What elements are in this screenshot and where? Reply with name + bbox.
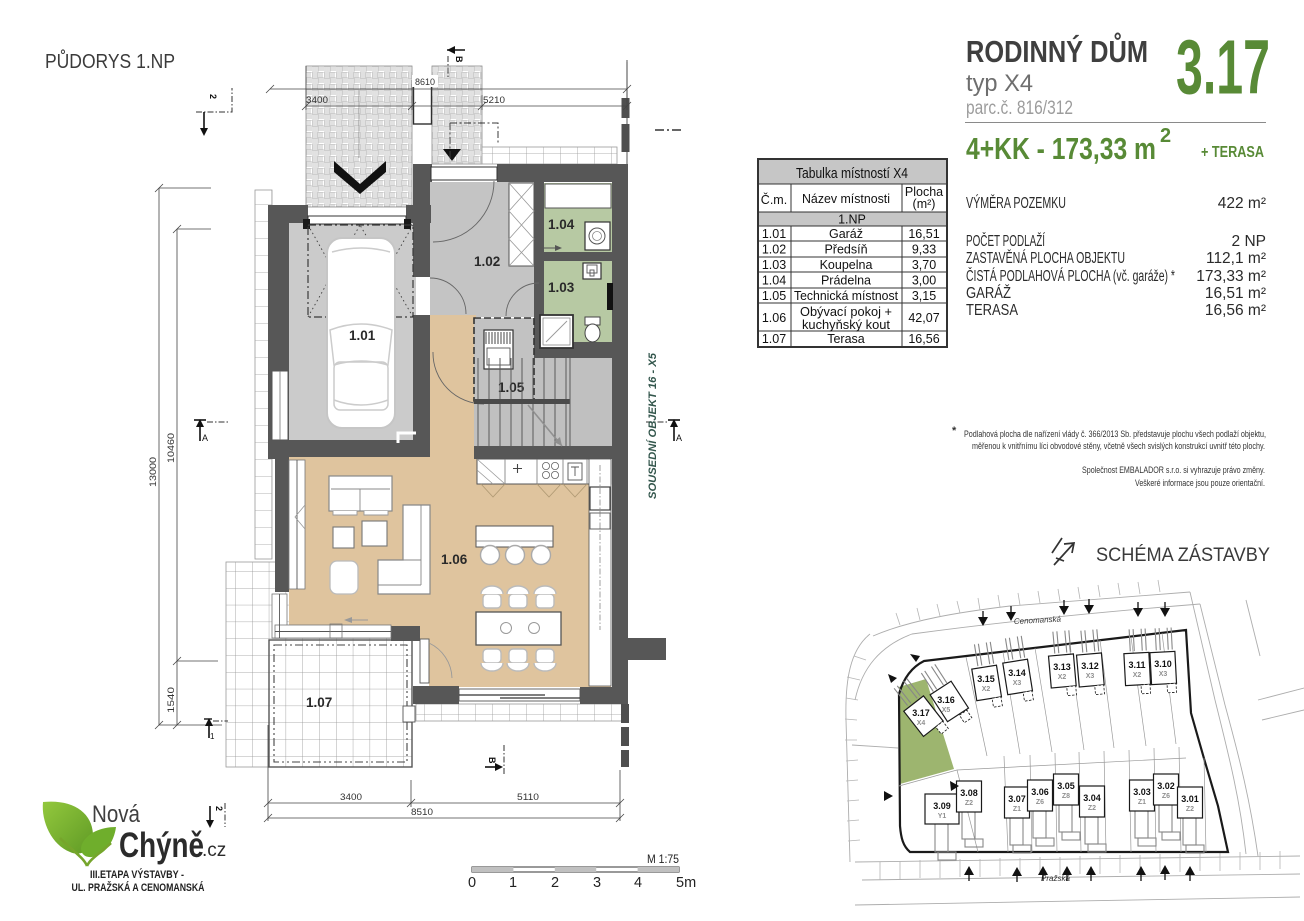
svg-text:16,56 m²: 16,56 m² <box>1205 302 1266 319</box>
svg-text:16,51 m²: 16,51 m² <box>1205 285 1266 302</box>
svg-text:3: 3 <box>593 875 601 891</box>
svg-text:Garáž: Garáž <box>829 227 863 241</box>
svg-text:10460: 10460 <box>166 433 176 463</box>
svg-text:měřenou k vnitřnímu líci obvod: měřenou k vnitřnímu líci obvodové stěny,… <box>972 441 1265 451</box>
svg-text:*: * <box>952 425 957 437</box>
svg-text:3.12: 3.12 <box>1081 661 1099 671</box>
svg-text:X2: X2 <box>1058 674 1067 681</box>
svg-text:4: 4 <box>634 875 642 891</box>
svg-text:Z2: Z2 <box>965 800 973 807</box>
svg-text:3.17: 3.17 <box>1176 25 1270 111</box>
svg-text:Název místnosti: Název místnosti <box>802 192 890 206</box>
svg-text:1.07: 1.07 <box>762 332 786 346</box>
svg-text:1.06: 1.06 <box>762 311 786 325</box>
svg-text:1.06: 1.06 <box>441 552 468 567</box>
svg-text:2: 2 <box>214 806 224 811</box>
svg-text:TERASA: TERASA <box>966 302 1019 319</box>
svg-text:5m: 5m <box>676 875 696 891</box>
svg-text:2: 2 <box>208 94 218 99</box>
svg-text:X3: X3 <box>1159 671 1168 678</box>
svg-text:A: A <box>676 433 682 443</box>
svg-text:3.17: 3.17 <box>912 708 930 718</box>
svg-text:3.14: 3.14 <box>1008 668 1026 678</box>
svg-text:422 m²: 422 m² <box>1218 195 1266 212</box>
svg-text:1540: 1540 <box>166 687 176 713</box>
svg-text:Obývací pokoj +: Obývací pokoj + <box>800 305 892 319</box>
svg-text:3.15: 3.15 <box>977 674 995 684</box>
svg-text:3.06: 3.06 <box>1031 787 1049 797</box>
svg-text:5110: 5110 <box>517 792 539 802</box>
svg-text:X2: X2 <box>1133 672 1142 679</box>
svg-text:1.02: 1.02 <box>762 243 786 257</box>
svg-text:Z1: Z1 <box>1138 799 1146 806</box>
svg-text:112,1 m²: 112,1 m² <box>1206 250 1266 267</box>
svg-text:3.11: 3.11 <box>1128 660 1145 670</box>
svg-text:3.05: 3.05 <box>1057 781 1075 791</box>
svg-text:9,33: 9,33 <box>912 243 936 257</box>
svg-text:Terasa: Terasa <box>827 332 865 346</box>
svg-text:Z2: Z2 <box>1088 805 1096 812</box>
svg-text:1.03: 1.03 <box>762 258 786 272</box>
svg-text:13000: 13000 <box>148 457 158 487</box>
svg-text:1.05: 1.05 <box>762 289 786 303</box>
svg-text:3,70: 3,70 <box>912 258 936 272</box>
svg-text:Z6: Z6 <box>1036 799 1044 806</box>
svg-text:VÝMĚRA POZEMKU: VÝMĚRA POZEMKU <box>966 195 1066 212</box>
svg-text:1.04: 1.04 <box>548 217 575 232</box>
svg-text:PŮDORYS 1.NP: PŮDORYS 1.NP <box>45 49 175 73</box>
svg-text:3400: 3400 <box>306 95 328 105</box>
svg-text:Společnost EMBALADOR s.r.o. si: Společnost EMBALADOR s.r.o. si vyhrazuje… <box>1082 465 1265 475</box>
svg-text:3.10: 3.10 <box>1154 659 1172 669</box>
svg-text:1: 1 <box>509 875 517 891</box>
svg-text:Pražská: Pražská <box>1041 874 1070 883</box>
svg-text:1.04: 1.04 <box>762 274 786 288</box>
svg-text:Tabulka místností X4: Tabulka místností X4 <box>796 166 908 182</box>
svg-text:1.01: 1.01 <box>762 227 786 241</box>
svg-text:3.16: 3.16 <box>937 695 955 705</box>
svg-text:16,56: 16,56 <box>908 332 939 346</box>
svg-text:Z2: Z2 <box>1186 806 1194 813</box>
svg-text:.cz: .cz <box>202 840 226 861</box>
svg-text:1.NP: 1.NP <box>838 213 866 227</box>
svg-text:Prádelna: Prádelna <box>821 274 871 288</box>
svg-text:Veškeré informace jsou pouze o: Veškeré informace jsou pouze orientační. <box>1135 478 1265 488</box>
svg-text:X3: X3 <box>1086 673 1095 680</box>
svg-text:+ TERASA: + TERASA <box>1201 144 1264 161</box>
svg-text:X3: X3 <box>1013 680 1022 687</box>
svg-text:3.02: 3.02 <box>1157 781 1175 791</box>
svg-text:B: B <box>454 56 464 63</box>
svg-text:4+KK - 173,33 m: 4+KK - 173,33 m <box>966 131 1156 166</box>
svg-text:Z6: Z6 <box>1162 793 1170 800</box>
svg-text:Podlahová plocha dle nařízení: Podlahová plocha dle nařízení vlády č. 3… <box>964 429 1266 439</box>
svg-text:1.07: 1.07 <box>306 695 332 710</box>
svg-text:1.02: 1.02 <box>474 254 500 269</box>
svg-text:kuchyňský kout: kuchyňský kout <box>802 318 891 332</box>
svg-text:1.01: 1.01 <box>349 328 376 343</box>
svg-text:3,00: 3,00 <box>912 274 936 288</box>
svg-text:X4: X4 <box>917 720 926 727</box>
svg-text:Chýně: Chýně <box>119 826 204 865</box>
svg-text:GARÁŽ: GARÁŽ <box>966 285 1011 302</box>
svg-text:3,15: 3,15 <box>912 289 936 303</box>
svg-text:1.03: 1.03 <box>548 280 575 295</box>
svg-text:8510: 8510 <box>411 807 433 817</box>
svg-text:SCHÉMA ZÁSTAVBY: SCHÉMA ZÁSTAVBY <box>1096 543 1270 566</box>
svg-text:Y1: Y1 <box>938 813 947 820</box>
svg-text:3.04: 3.04 <box>1083 793 1101 803</box>
svg-text:5210: 5210 <box>483 95 505 105</box>
svg-text:X2: X2 <box>982 686 991 693</box>
svg-text:SOUSEDNÍ OBJEKT 16 - X5: SOUSEDNÍ OBJEKT 16 - X5 <box>646 352 659 499</box>
svg-text:8610: 8610 <box>415 77 435 87</box>
svg-text:Koupelna: Koupelna <box>820 258 873 272</box>
svg-text:2 NP: 2 NP <box>1232 233 1266 250</box>
svg-text:Z8: Z8 <box>1062 793 1070 800</box>
svg-text:Z1: Z1 <box>1013 806 1021 813</box>
svg-text:(m²): (m²) <box>913 197 936 211</box>
svg-text:173,33 m²: 173,33 m² <box>1196 268 1266 285</box>
svg-text:3.08: 3.08 <box>960 788 978 798</box>
svg-text:0: 0 <box>468 875 476 891</box>
svg-text:Předsíň: Předsíň <box>824 243 867 257</box>
svg-text:3.03: 3.03 <box>1133 787 1151 797</box>
svg-text:M 1:75: M 1:75 <box>647 854 679 866</box>
svg-text:Technická místnost: Technická místnost <box>794 289 899 303</box>
svg-text:X5: X5 <box>942 707 951 714</box>
svg-text:3.13: 3.13 <box>1053 662 1071 672</box>
svg-text:Č.m.: Č.m. <box>761 192 787 207</box>
svg-text:RODINNÝ DŮM: RODINNÝ DŮM <box>966 31 1148 69</box>
svg-text:B: B <box>487 757 497 764</box>
svg-text:parc.č. 816/312: parc.č. 816/312 <box>966 98 1073 119</box>
svg-text:2: 2 <box>1160 125 1171 147</box>
svg-text:III.ETAPA VÝSTAVBY -: III.ETAPA VÝSTAVBY - <box>90 868 184 881</box>
svg-text:ČISTÁ PODLAHOVÁ PLOCHA (vč. ga: ČISTÁ PODLAHOVÁ PLOCHA (vč. garáže) * <box>966 268 1175 285</box>
svg-text:3.01: 3.01 <box>1181 794 1199 804</box>
svg-text:typ X4: typ X4 <box>966 70 1033 97</box>
svg-text:16,51: 16,51 <box>908 227 939 241</box>
svg-text:2: 2 <box>551 875 559 891</box>
svg-text:Nová: Nová <box>92 801 141 828</box>
svg-text:ZASTAVĚNÁ PLOCHA OBJEKTU: ZASTAVĚNÁ PLOCHA OBJEKTU <box>966 250 1125 267</box>
svg-text:A: A <box>202 433 208 443</box>
svg-text:POČET PODLAŽÍ: POČET PODLAŽÍ <box>966 233 1045 250</box>
svg-text:1: 1 <box>210 732 215 741</box>
svg-text:UL. PRAŽSKÁ A CENOMANSKÁ: UL. PRAŽSKÁ A CENOMANSKÁ <box>72 881 205 894</box>
svg-text:42,07: 42,07 <box>908 311 939 325</box>
svg-text:3.07: 3.07 <box>1008 794 1026 804</box>
svg-text:3.09: 3.09 <box>933 801 951 811</box>
svg-text:3400: 3400 <box>340 792 362 802</box>
